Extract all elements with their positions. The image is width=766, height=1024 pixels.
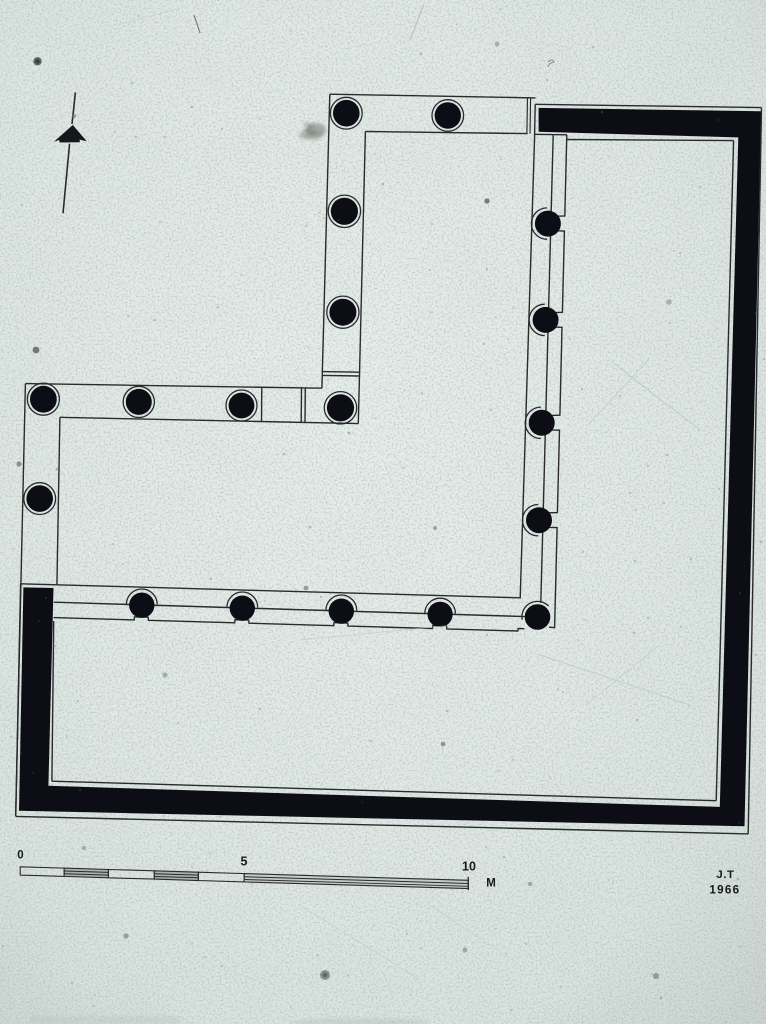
svg-text:M: M: [486, 878, 496, 890]
svg-text:5: 5: [241, 854, 248, 868]
svg-text:10: 10: [462, 860, 476, 874]
svg-text:1966: 1966: [709, 883, 740, 896]
svg-text:0: 0: [17, 850, 23, 862]
svg-text:J.T: J.T: [716, 869, 734, 881]
